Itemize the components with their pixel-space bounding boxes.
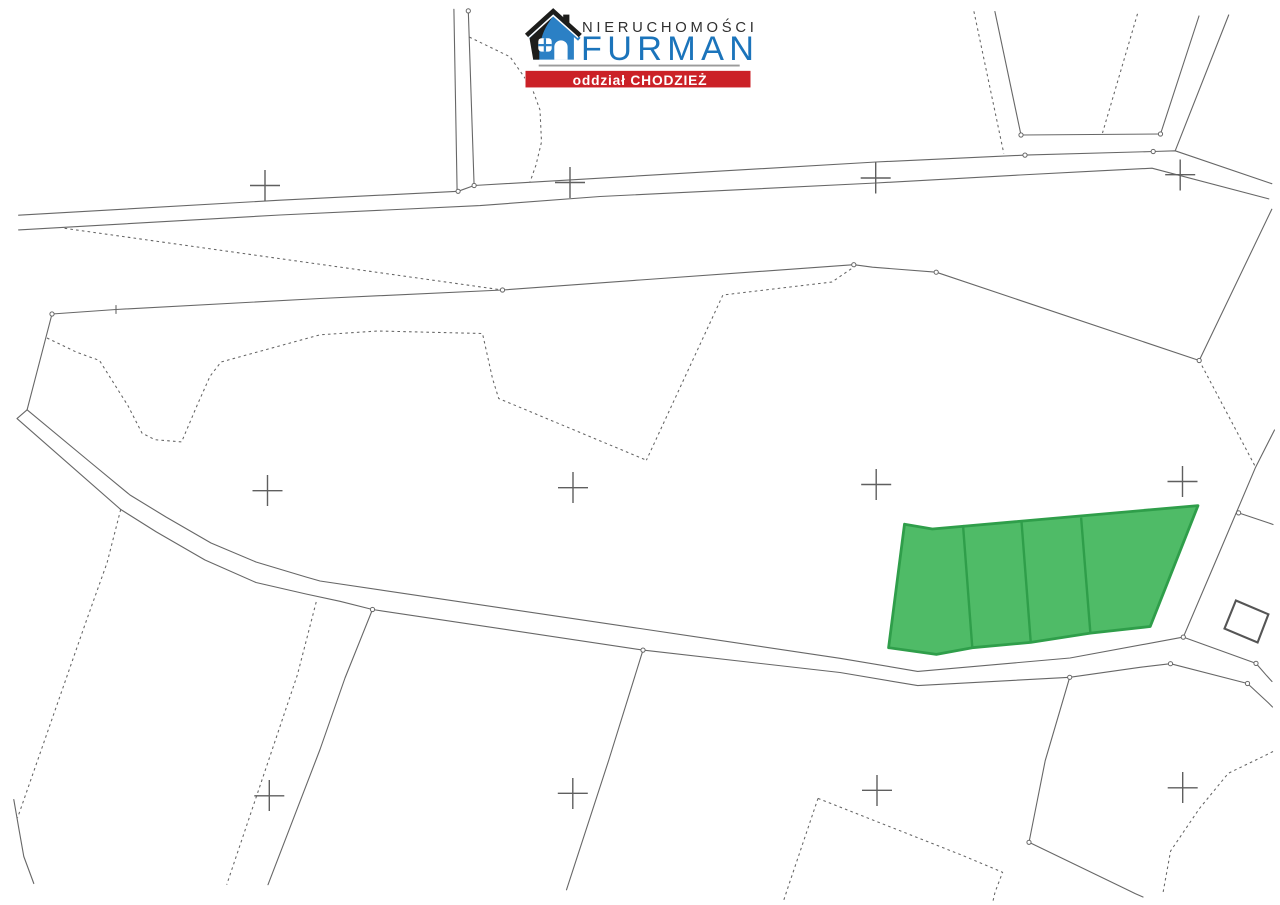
svg-text:oddział CHODZIEŻ: oddział CHODZIEŻ <box>573 72 708 88</box>
svg-text:FURMAN: FURMAN <box>581 30 759 68</box>
